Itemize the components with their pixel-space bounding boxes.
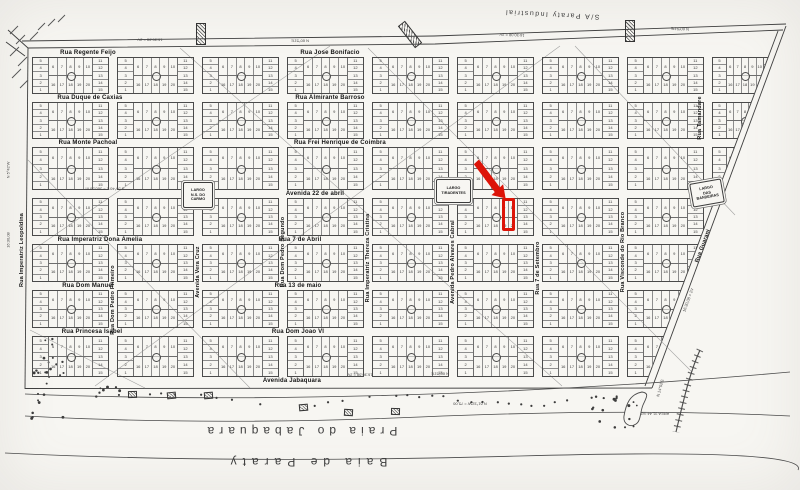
lot-cell: 15 [348,87,363,93]
lot-cell: 20 [169,121,177,138]
lot-cell: 5 [373,245,388,252]
lot-cell: 3 [543,260,558,267]
lot-cell: 6 [304,148,313,168]
lot-cell: 5 [628,148,643,156]
lot-cell: 12 [178,156,193,164]
lot-cell: 6 [389,103,398,120]
lot-cell: 6 [219,291,228,309]
lot-cell: 19 [245,218,254,236]
lot-strip: 1112131415 [93,245,108,281]
lot-cell: 3 [458,306,473,313]
lot-cell: 20 [594,218,602,236]
lot-cell: 17 [653,169,662,189]
lot-strip: 54321 [458,103,474,138]
lot-cell: 11 [263,337,278,345]
lot-cell: 2 [458,313,473,320]
city-block: 5432167891016171819201112131415 [287,244,364,282]
lot-cell: 9 [75,337,84,356]
lot-cell: 3 [203,117,218,124]
city-block: 5432167891016171819201112131415 [542,290,619,328]
lot-cell: 1 [628,275,643,281]
lot-cell: 16 [389,310,398,328]
lot-cell: 3 [288,353,303,361]
lot-cell: 12 [518,110,533,117]
lot-cell: 16 [727,76,734,93]
lot-strip: 54321 [628,245,644,281]
lot-cell: 6 [49,291,58,309]
lot-cell: 17 [143,264,152,282]
lot-cell: 5 [628,291,643,298]
lot-cell: 14 [688,221,703,228]
lot-strip: 54321 [543,199,559,235]
lot-cell: 4 [373,345,388,353]
lot-cell: 9 [245,199,254,217]
lot-cell: 6 [474,58,483,75]
lot-cell: 1 [628,369,643,376]
lot-cell: 16 [389,218,398,236]
lot-cell: 16 [389,264,398,282]
lot-cell: 19 [160,218,169,236]
lot-strip: 1112131415 [433,103,448,138]
lot-cell: 1 [458,321,473,327]
lot-cell: 5 [713,103,726,110]
lot-cell: 2 [288,361,303,369]
lot-cell: 7 [398,291,407,309]
lot-cell: 16 [389,169,398,189]
lot-cell: 3 [288,117,303,124]
lot-cell: 7 [143,291,152,309]
lot-cell: 16 [219,76,228,93]
lot-cell: 3 [543,214,558,221]
lot-cell: 10 [84,103,92,120]
lot-cell: 17 [568,264,577,282]
lot-cell: 3 [33,353,48,361]
lot-strip: 54321 [33,337,49,376]
lot-cell: 13 [178,117,193,124]
lot-cell: 2 [203,267,218,274]
lot-cell: 1 [288,275,303,281]
lot-cell: 9 [585,291,594,309]
lot-cell: 15 [348,275,363,281]
lot-cell: 16 [219,121,228,138]
lot-cell: 11 [603,58,618,65]
beach-building [167,392,177,400]
largo-label: TIRADENTES [441,191,465,196]
lot-cell: 5 [543,291,558,298]
lot-cell: 17 [313,218,322,236]
lot-strip: 1112131415 [93,337,108,376]
lot-cell: 6 [219,199,228,217]
lot-strip: 54321 [458,199,474,235]
lot-cell: 4 [118,298,133,305]
lot-cell: 12 [348,65,363,72]
lot-cell: 19 [415,218,424,236]
lot-cell: 3 [33,306,48,313]
lot-cell: 1 [33,275,48,281]
lot-cell: 7 [143,199,152,217]
city-block: 5432167891016171819201112131415 [117,57,194,94]
lot-cell: 20 [424,264,432,282]
lot-cell: 20 [254,264,262,282]
lot-cell: 4 [33,156,48,164]
lot-cell: 10 [424,245,432,263]
lot-cell: 16 [644,76,653,93]
lot-cell: 3 [288,165,303,173]
lot-cell: 1 [118,87,133,93]
lot-cell: 13 [348,306,363,313]
lot-cell: 7 [568,58,577,75]
lot-strip: 54321 [288,291,304,327]
lot-cell: 4 [458,65,473,72]
lot-cell: 10 [339,148,347,168]
lot-cell: 9 [415,291,424,309]
lot-cell: 14 [263,361,278,369]
block-id-circle [407,213,416,222]
lot-cell: 5 [288,291,303,298]
lot-cell: 20 [169,76,177,93]
lot-cell: 3 [373,260,388,267]
block-id-circle [67,305,76,314]
lot-cell: 14 [178,173,193,181]
block-id-circle [577,165,586,174]
lot-cell: 5 [543,199,558,206]
lot-cell: 4 [118,65,133,72]
lot-strip: 54321 [373,291,389,327]
lot-cell: 9 [415,103,424,120]
lot-cell: 3 [713,117,726,124]
lot-strip: 1112131415 [348,103,363,138]
lot-cell: 2 [203,313,218,320]
lot-cell: 9 [585,199,594,217]
lot-cell: 3 [458,117,473,124]
lot-cell: 4 [288,206,303,213]
lot-cell: 13 [603,260,618,267]
lot-strip: 1112131415 [263,148,278,189]
lot-cell: 2 [118,361,133,369]
lot-cell: 1 [118,275,133,281]
block-id-circle [152,165,161,174]
lot-cell: 12 [263,298,278,305]
lot-cell: 16 [474,76,483,93]
lot-cell: 13 [263,214,278,221]
lot-cell: 16 [474,264,483,282]
lot-cell: 2 [628,361,643,369]
lot-strip: 54321 [33,245,49,281]
lot-cell: 20 [594,121,602,138]
lot-cell: 5 [118,337,133,345]
lot-cell: 4 [118,206,133,213]
lot-strip: 54321 [33,148,49,189]
lot-cell: 17 [143,121,152,138]
largo-label: CARMO [191,197,205,202]
lot-cell: 9 [245,103,254,120]
lot-strip: 1112131415 [518,337,533,376]
lot-strip: 54321 [628,103,644,138]
lot-cell: 12 [263,252,278,259]
city-block: 5432167891016171819201112131415 [372,198,449,236]
lot-cell: 13 [93,165,108,173]
lot-cell: 14 [263,313,278,320]
lot-cell: 2 [33,267,48,274]
lot-strip: 1112131415 [178,337,193,376]
lot-strip: 1112131415 [178,58,193,93]
lot-cell: 2 [373,313,388,320]
lot-cell: 17 [228,76,237,93]
lot-cell: 12 [263,206,278,213]
lot-cell: 5 [33,58,48,65]
lot-cell: 3 [628,260,643,267]
lot-cell: 13 [348,214,363,221]
lot-cell: 10 [254,148,262,168]
lot-cell: 2 [118,221,133,228]
lot-cell: 7 [228,103,237,120]
lot-cell: 17 [313,264,322,282]
lot-cell: 10 [339,291,347,309]
lot-strip: 1112131415 [93,291,108,327]
lot-cell: 1 [203,87,218,93]
block-id-circle [67,353,76,362]
lot-cell: 2 [628,173,643,181]
lot-strip: 1112131415 [603,148,618,189]
lot-cell: 13 [348,72,363,79]
lot-cell: 17 [568,169,577,189]
block-id-circle [407,117,416,126]
city-block: 5432167891016171819201112131415 [372,290,449,328]
city-block: 5432167891016171819201112131415 [32,57,109,94]
lot-cell: 20 [84,310,92,328]
lot-cell: 19 [330,121,339,138]
lot-cell: 11 [433,58,448,65]
lot-cell: 12 [348,206,363,213]
block-id-circle [322,259,331,268]
lot-cell: 13 [433,72,448,79]
lot-cell: 1 [118,321,133,327]
block-id-circle [67,213,76,222]
lot-cell: 19 [75,76,84,93]
lot-cell: 1 [628,182,643,189]
lot-cell: 19 [160,169,169,189]
lot-cell: 5 [543,148,558,156]
lot-cell: 2 [288,80,303,87]
lot-cell: 14 [178,313,193,320]
lot-cell: 10 [169,103,177,120]
lot-cell: 6 [559,148,568,168]
lot-cell: 16 [49,310,58,328]
lot-cell: 10 [594,199,602,217]
lot-cell: 6 [134,148,143,168]
lot-cell: 10 [254,245,262,263]
lot-cell: 9 [75,148,84,168]
lot-cell: 2 [203,173,218,181]
lot-cell: 3 [458,165,473,173]
lot-cell: 15 [603,182,618,189]
lot-cell: 15 [348,229,363,235]
lot-cell: 16 [644,310,653,328]
lot-cell: 4 [118,110,133,117]
lot-cell: 12 [348,252,363,259]
lot-cell: 11 [688,148,703,156]
lot-cell: 9 [585,148,594,168]
city-block: 5432167891016171819201112131415 [202,290,279,328]
lot-cell: 10 [169,245,177,263]
lot-cell: 4 [203,65,218,72]
lot-cell: 3 [543,117,558,124]
lot-strip: 54321 [203,103,219,138]
lot-cell: 11 [178,103,193,110]
lot-cell: 3 [713,165,726,173]
lot-cell: 13 [433,117,448,124]
street-label: Rua Imperatriz Leopoldina [19,213,25,287]
lot-cell: 7 [568,103,577,120]
lot-cell: 10 [169,291,177,309]
city-block: 5432167891016171819201112131415 [457,57,534,94]
block-id-circle [237,213,246,222]
lot-cell: 13 [178,214,193,221]
lot-cell: 12 [178,110,193,117]
lot-cell: 5 [33,245,48,252]
lot-cell: 15 [688,87,703,93]
lot-cell: 17 [398,218,407,236]
lot-cell: 16 [304,310,313,328]
lot-cell: 9 [160,337,169,356]
lot-cell: 16 [134,310,143,328]
lot-cell: 6 [389,148,398,168]
lot-cell: 16 [559,76,568,93]
lot-cell: 15 [518,275,533,281]
block-id-circle [577,213,586,222]
lot-cell: 19 [670,76,679,93]
lot-cell: 13 [688,214,703,221]
lot-strip: 54321 [373,199,389,235]
lot-cell: 9 [670,148,679,168]
lot-cell: 13 [93,72,108,79]
lot-cell: 14 [688,80,703,87]
lot-cell: 16 [134,357,143,376]
lot-cell: 14 [93,221,108,228]
lot-cell: 16 [219,357,228,376]
lot-cell: 1 [713,87,726,93]
city-block: 5432167891016171819201112131415 [627,102,704,139]
lot-cell: 14 [603,80,618,87]
lot-cell: 11 [348,245,363,252]
lot-cell: 7 [313,337,322,356]
lot-cell: 10 [339,58,347,75]
lot-cell: 20 [594,76,602,93]
lot-cell: 4 [543,110,558,117]
lot-cell: 19 [415,264,424,282]
lot-cell: 5 [458,148,473,156]
lot-cell: 14 [263,173,278,181]
city-block: 5432167891016171819201112131415 [457,198,534,236]
lot-cell: 19 [330,357,339,376]
lot-cell: 14 [518,221,533,228]
lot-strip: 54321 [373,58,389,93]
lot-cell: 17 [483,121,492,138]
lot-cell: 15 [518,229,533,235]
lot-cell: 17 [143,76,152,93]
lot-cell: 17 [58,218,67,236]
lot-cell: 3 [628,72,643,79]
lot-cell: 5 [373,148,388,156]
block-id-circle [662,213,671,222]
lot-cell: 7 [483,58,492,75]
lot-cell: 5 [203,245,218,252]
lot-cell: 9 [245,58,254,75]
lot-cell: 2 [203,221,218,228]
lot-cell: 10 [424,58,432,75]
lot-strip: 54321 [288,103,304,138]
lot-cell: 20 [169,310,177,328]
lot-cell: 16 [134,169,143,189]
lot-cell: 20 [509,264,517,282]
block-id-circle [577,117,586,126]
lot-cell: 4 [458,298,473,305]
beach-building [391,408,400,415]
block-id-circle [67,165,76,174]
lot-cell: 15 [263,182,278,189]
block-id-circle [152,213,161,222]
lot-cell: 5 [288,58,303,65]
lot-cell: 2 [33,125,48,132]
lot-cell: 4 [458,206,473,213]
lot-cell: 20 [254,357,262,376]
lot-cell: 5 [628,245,643,252]
lot-cell: 17 [143,169,152,189]
lot-cell: 9 [500,337,509,356]
lot-cell: 1 [288,229,303,235]
lot-cell: 12 [603,298,618,305]
lot-cell: 20 [594,357,602,376]
lot-cell: 10 [84,148,92,168]
lot-cell: 6 [304,199,313,217]
lot-cell: 3 [118,117,133,124]
lot-cell: 14 [263,80,278,87]
lot-cell: 12 [93,65,108,72]
lot-strip: 1112131415 [603,58,618,93]
block-id-circle [237,305,246,314]
lot-cell: 19 [160,310,169,328]
lot-cell: 17 [143,310,152,328]
lot-cell: 11 [433,148,448,156]
lot-cell: 11 [433,245,448,252]
block-id-circle [67,117,76,126]
lot-cell: 10 [509,103,517,120]
lot-cell: 14 [348,267,363,274]
lot-cell: 13 [93,117,108,124]
city-block: 5432167891016171819201112131415 [202,147,279,190]
lot-cell: 10 [339,337,347,356]
lot-cell: 5 [203,103,218,110]
lot-cell: 1 [33,182,48,189]
block-id-circle [662,259,671,268]
lot-cell: 7 [228,337,237,356]
block-id-circle [152,353,161,362]
lot-cell: 1 [458,132,473,138]
lot-cell: 17 [568,121,577,138]
city-block: 5432167891016171819201112131415 [32,290,109,328]
lot-cell: 12 [603,156,618,164]
lot-cell: 2 [543,361,558,369]
lot-cell: 13 [178,260,193,267]
lot-cell: 10 [424,103,432,120]
lot-cell: 6 [134,245,143,263]
lot-cell: 15 [433,321,448,327]
lot-cell: 16 [559,169,568,189]
lot-cell: 1 [288,132,303,138]
lot-cell: 17 [143,218,152,236]
lot-cell: 16 [304,121,313,138]
lot-cell: 17 [653,218,662,236]
